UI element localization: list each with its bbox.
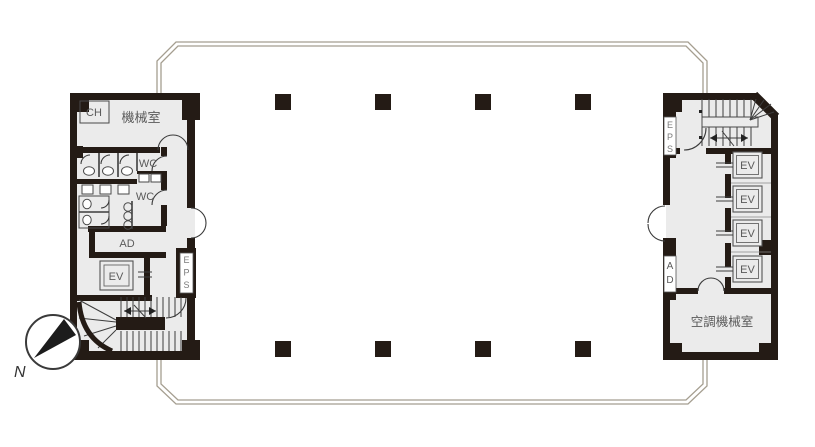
ac-machine-room-label: 空調機械室: [691, 314, 754, 329]
ev-label-2: EV: [740, 194, 755, 206]
column: [575, 94, 591, 110]
toilet: [83, 199, 91, 209]
column: [575, 341, 591, 357]
ad-label-left: AD: [119, 238, 134, 250]
column: [375, 341, 391, 357]
compass: N: [14, 315, 80, 381]
ev-label-1: EV: [740, 160, 755, 172]
column: [375, 94, 391, 110]
toilet: [122, 167, 133, 175]
floor-plan-page: CH 機械室 WC WC AD EV EPS: [0, 0, 815, 447]
urinal: [100, 185, 111, 194]
floor-plan-drawing: CH 機械室 WC WC AD EV EPS: [0, 0, 815, 447]
toilet: [83, 215, 91, 225]
eps-label-right: EPS: [667, 120, 673, 154]
left-core: CH 機械室 WC WC AD EV EPS: [70, 93, 206, 360]
urinal: [118, 185, 129, 194]
column: [475, 341, 491, 357]
office-area-inner-border: [161, 46, 703, 400]
toilet: [84, 167, 95, 175]
ev-label-4: EV: [740, 264, 755, 276]
structural-columns: [275, 94, 591, 357]
sink: [139, 174, 149, 182]
column: [475, 94, 491, 110]
column: [275, 94, 291, 110]
compass-north-label: N: [14, 364, 26, 381]
wc-lower-label: WC: [136, 191, 154, 203]
office-area-outer-border: [157, 42, 707, 404]
wc-upper-label: WC: [139, 158, 157, 170]
column: [275, 341, 291, 357]
toilet: [103, 167, 114, 175]
machine-room-label: 機械室: [121, 110, 160, 125]
ev-label-3: EV: [740, 228, 755, 240]
ch-label: CH: [86, 107, 102, 119]
eps-label-left: EPS: [183, 255, 189, 290]
right-core: EPS AD EV EV EV EV 空調機械室: [648, 93, 778, 360]
office-area: [157, 42, 707, 404]
urinal: [82, 185, 93, 194]
sink: [151, 174, 161, 182]
ev-label-left: EV: [109, 271, 124, 283]
